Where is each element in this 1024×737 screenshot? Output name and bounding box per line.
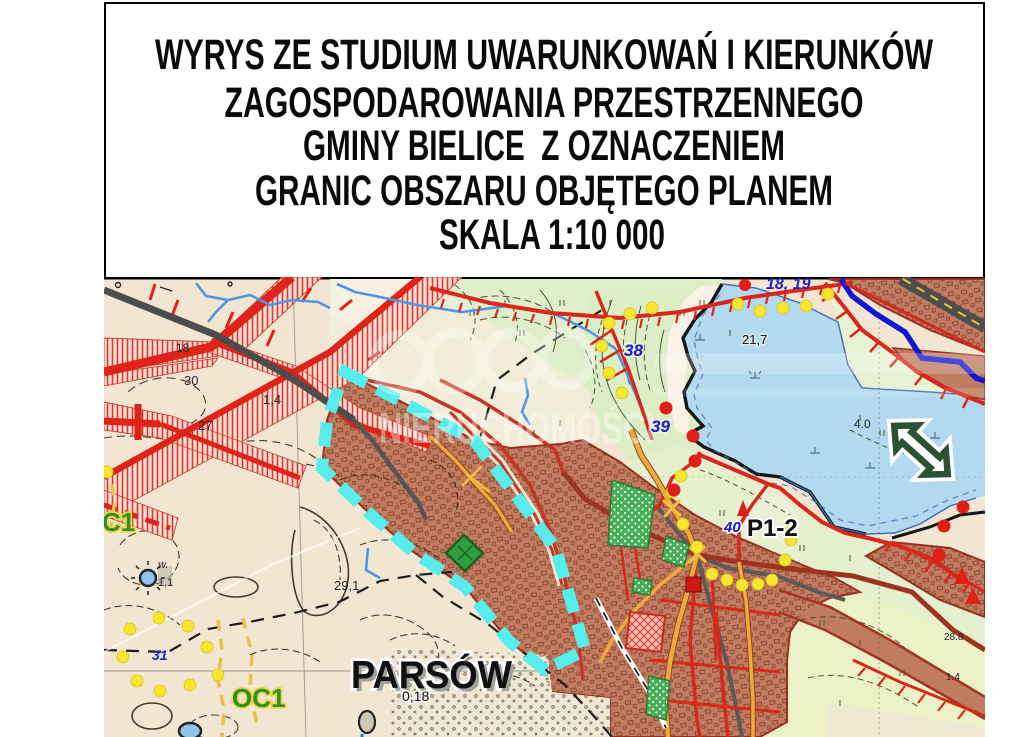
svg-text:21,7: 21,7 — [742, 332, 767, 347]
svg-text:GMINY BIELICE Z OZNACZENIEM: GMINY BIELICE Z OZNACZENIEM — [303, 122, 785, 170]
svg-text:28.8: 28.8 — [944, 632, 964, 643]
svg-text:30: 30 — [184, 373, 198, 388]
svg-text:1.4: 1.4 — [946, 672, 960, 683]
svg-text:1,4: 1,4 — [263, 392, 281, 407]
svg-text:39: 39 — [651, 417, 670, 436]
svg-text:18: 18 — [176, 341, 190, 355]
svg-text:27: 27 — [198, 418, 212, 433]
svg-text:NIERUCHOMOŚCI: NIERUCHOMOŚCI — [379, 403, 655, 453]
svg-text:18, 19: 18, 19 — [766, 277, 811, 293]
svg-text:29,1: 29,1 — [334, 578, 359, 593]
svg-text:38: 38 — [624, 341, 643, 360]
svg-text:OC1: OC1 — [232, 683, 285, 713]
svg-text:SKALA 1:10 000: SKALA 1:10 000 — [439, 211, 665, 259]
svg-text:31: 31 — [152, 647, 168, 663]
svg-text:P1-2: P1-2 — [747, 515, 798, 542]
svg-text:C1: C1 — [104, 507, 135, 537]
svg-text:4.0: 4.0 — [854, 417, 871, 431]
svg-text:w.: w. — [158, 559, 168, 571]
svg-text:WYRYS ZE STUDIUM UWARUNKOWAŃ I: WYRYS ZE STUDIUM UWARUNKOWAŃ I KIERUNKÓW — [155, 30, 933, 79]
svg-text:40: 40 — [723, 519, 741, 536]
svg-text:GRANIC OBSZARU OBJĘTEGO PLANEM: GRANIC OBSZARU OBJĘTEGO PLANEM — [255, 167, 833, 215]
svg-text:ZAGOSPODAROWANIA PRZESTRZENNEG: ZAGOSPODAROWANIA PRZESTRZENNEGO — [225, 79, 864, 127]
svg-text:1,1: 1,1 — [158, 577, 173, 589]
svg-text:0,18: 0,18 — [402, 688, 429, 704]
svg-text:PARSÓW: PARSÓW — [351, 653, 512, 697]
